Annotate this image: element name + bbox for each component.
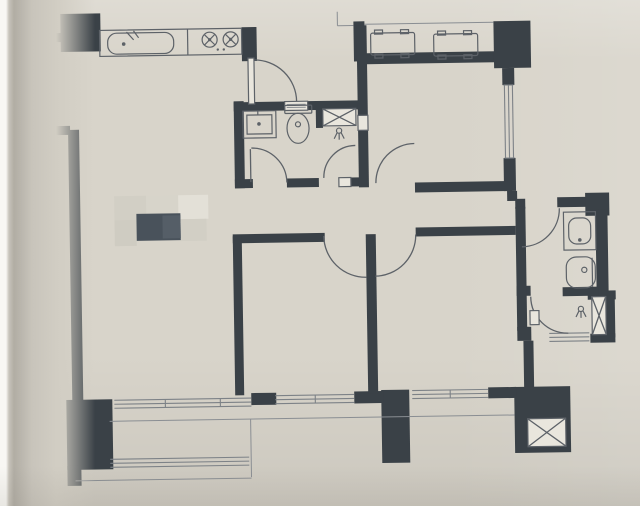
duct-x-shaft-middle: [323, 108, 356, 126]
window-bottom-middle: [275, 394, 354, 403]
shower-head-right: [576, 306, 586, 318]
floor-plan-drawing: [0, 0, 640, 506]
door-arc-bedroom-right: [375, 234, 417, 276]
page-fold-shadow: [0, 0, 95, 506]
window-bath-bottom: [549, 333, 589, 342]
duct-x-shaft-right: [592, 297, 607, 335]
toilet-2: [566, 257, 595, 288]
door-arc-bedroom-middle: [324, 235, 367, 278]
stove-burners: [202, 32, 238, 51]
kitchen-sink: [107, 30, 173, 54]
kitchen-counter: [99, 28, 241, 56]
shower-head-middle: [334, 128, 344, 140]
bathroom-vanity-2: [563, 212, 596, 250]
sills: [285, 98, 540, 329]
door-leaf-bathroom: [248, 58, 255, 104]
window-bottom-right: [412, 389, 488, 398]
bottom-shadow: [0, 466, 640, 506]
window-right-bedroom: [503, 85, 514, 158]
window-bottom-left: [114, 398, 251, 408]
door-arc-bathroom-inner: [251, 148, 287, 184]
column-bottom-center: [381, 390, 410, 463]
duct-x-shaft-bottom-right: [528, 418, 566, 447]
bathroom-vanity: [243, 111, 276, 139]
door-arc-bathroom-main: [254, 59, 297, 102]
wall-notch-bath: [530, 311, 539, 325]
door-arc-bath-right: [521, 208, 560, 247]
censor-pixelation-patch: [114, 195, 209, 246]
floor-plan-photo: [0, 0, 640, 506]
sill-shower-door: [339, 178, 351, 187]
column-top-right: [493, 21, 531, 69]
wall-notch-divider: [358, 115, 368, 130]
door-arc-shower-room: [323, 145, 355, 177]
door-arc-bedroom-top-right: [375, 144, 415, 184]
